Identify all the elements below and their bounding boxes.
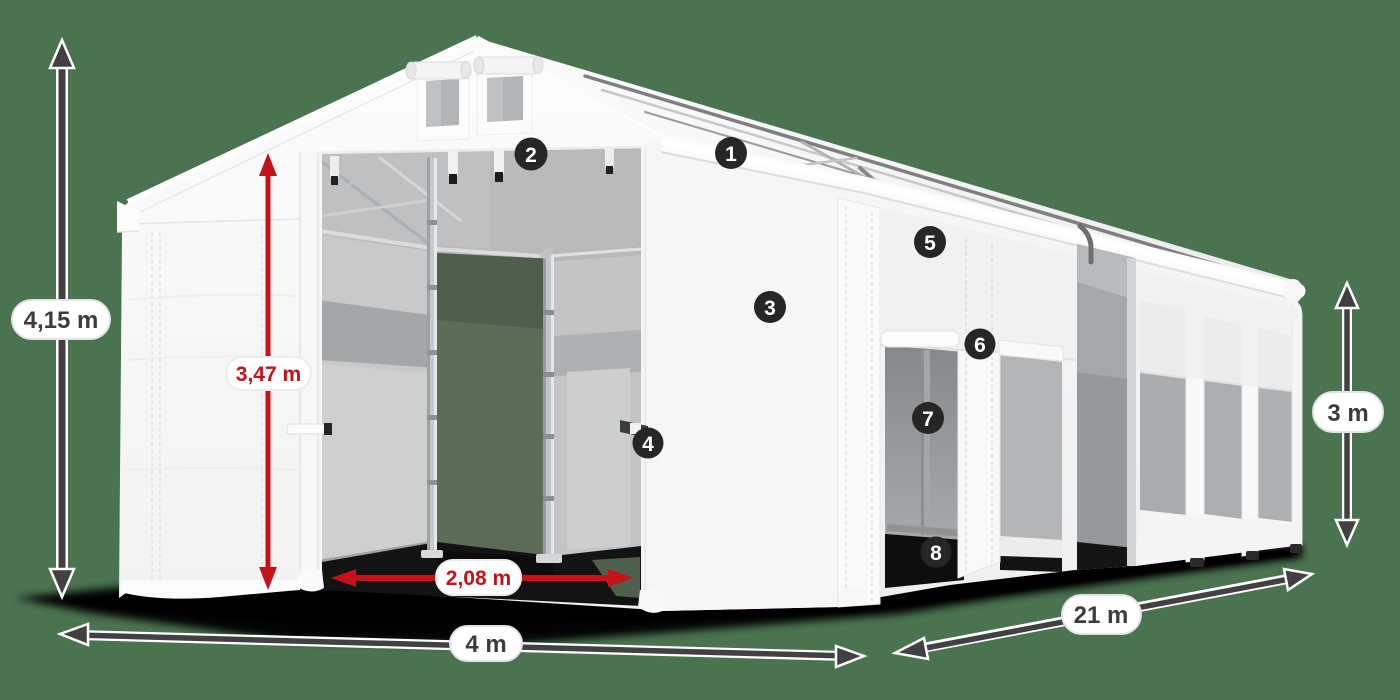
svg-text:3,47 m: 3,47 m [236,363,301,386]
svg-text:1: 1 [725,143,737,166]
svg-text:4,15 m: 4,15 m [24,307,99,334]
svg-text:3: 3 [764,297,776,320]
svg-text:5: 5 [924,232,936,255]
svg-text:2: 2 [525,144,537,167]
svg-text:21 m: 21 m [1074,602,1129,629]
svg-text:8: 8 [930,542,942,565]
svg-text:3 m: 3 m [1327,400,1368,427]
svg-text:7: 7 [922,408,934,431]
svg-text:2,08 m: 2,08 m [446,567,511,590]
svg-text:4 m: 4 m [465,631,506,658]
svg-text:4: 4 [642,433,654,456]
svg-text:6: 6 [974,334,986,357]
